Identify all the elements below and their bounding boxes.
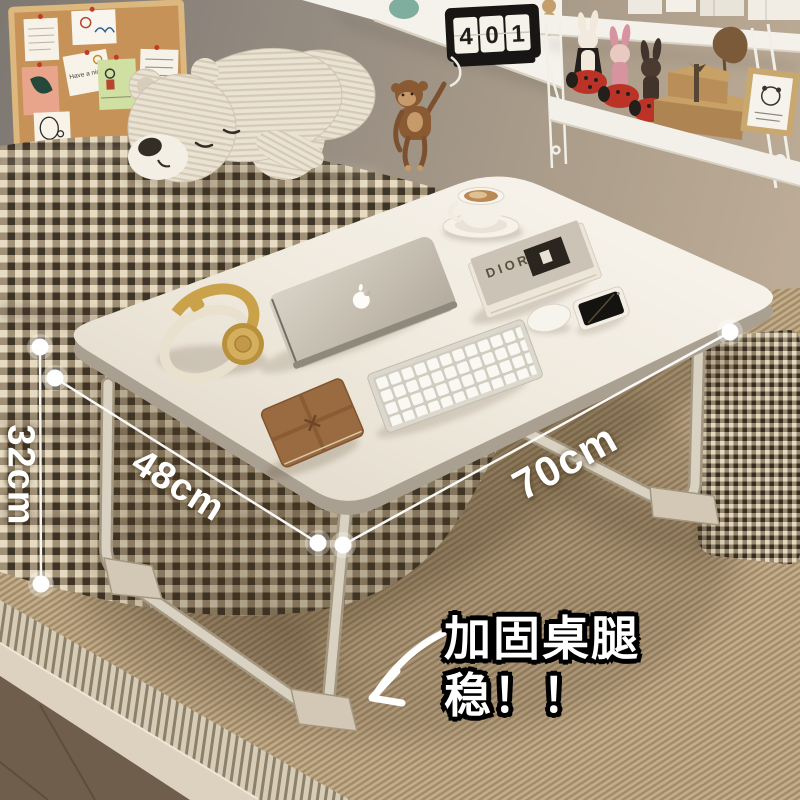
svg-text:4: 4 [459, 23, 474, 51]
svg-text:1: 1 [511, 20, 526, 48]
flip-calendar: 4 0 1 [445, 4, 542, 68]
callout-line1: 加固桌腿 [444, 610, 640, 667]
photo-frame [740, 67, 799, 137]
callout-line2: 稳！！ [444, 667, 640, 724]
product-photo-scene: Have a nice day [0, 0, 800, 800]
svg-text:0: 0 [485, 22, 500, 50]
scene-illustration: Have a nice day [0, 0, 800, 800]
note-lined [23, 18, 59, 61]
callout-text: 加固桌腿 稳！！ [444, 610, 640, 725]
dimension-label-height: 32cm [0, 424, 42, 525]
